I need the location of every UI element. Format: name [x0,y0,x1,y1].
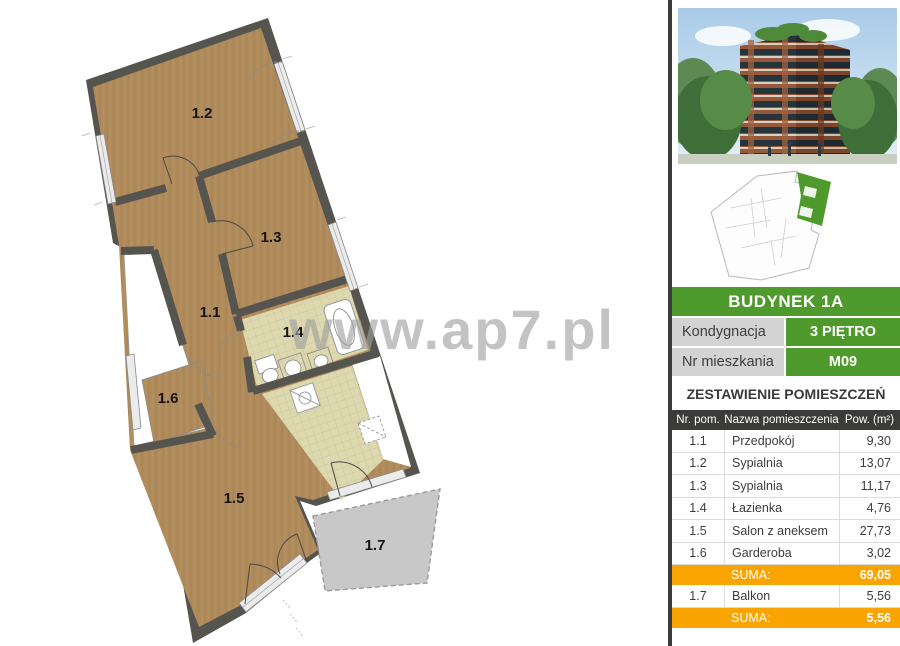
info-row-nr-mieszkania: Nr mieszkania M09 [672,348,900,376]
room-area: 4,76 [839,498,900,520]
room-area: 13,07 [839,453,900,475]
room-label: 1.7 [365,537,386,554]
room-label: 1.3 [261,229,282,246]
suma-value: 69,05 [839,568,900,582]
building-title: BUDYNEK 1A [672,287,900,316]
floor-plan-area: 1.1 1.2 1.3 1.4 1.5 1.6 1.7 www.ap7.pl [0,0,668,646]
info-value: 3 PIĘTRO [786,318,900,346]
room-label: 1.5 [224,490,245,507]
col-header-area: Pow. (m²) [839,414,900,426]
room-area: 27,73 [839,520,900,542]
floor-overview-miniplan [701,168,871,284]
col-header-nr: Nr. pom. [672,414,724,426]
room-area: 11,17 [839,475,900,497]
room-name: Balkon [724,585,839,607]
sidebar: BUDYNEK 1A Kondygnacja 3 PIĘTRO Nr miesz… [668,0,900,646]
ground [678,154,897,164]
suma-row-balcony: SUMA: 5,56 [672,608,900,628]
room-label: 1.2 [192,105,213,122]
table-row: 1.1 Przedpokój 9,30 [672,430,900,453]
table-row: 1.7 Balkon 5,56 [672,585,900,608]
rooms-table-title: ZESTAWIENIE POMIESZCZEŃ [672,378,900,410]
room-nr: 1.2 [672,456,724,470]
room-area: 3,02 [839,543,900,565]
floor-plan-svg: 1.1 1.2 1.3 1.4 1.5 1.6 1.7 www.ap7.pl [0,0,668,646]
room-name: Sypialnia [724,453,839,475]
room-name: Sypialnia [724,475,839,497]
room-nr: 1.5 [672,524,724,538]
info-label: Nr mieszkania [672,348,784,376]
table-row: 1.3 Sypialnia 11,17 [672,475,900,498]
room-name: Garderoba [724,543,839,565]
room-nr: 1.6 [672,546,724,560]
table-row: 1.6 Garderoba 3,02 [672,543,900,566]
unit-highlight [797,172,831,226]
room-name: Łazienka [724,498,839,520]
room-nr: 1.4 [672,501,724,515]
table-row: 1.2 Sypialnia 13,07 [672,453,900,476]
room-area: 5,56 [839,585,900,607]
room-nr: 1.3 [672,479,724,493]
rooms-table-body: 1.1 Przedpokój 9,30 1.2 Sypialnia 13,07 … [672,430,900,628]
room-label: 1.6 [158,390,179,407]
room-label: 1.1 [200,304,221,321]
suma-row-apartment: SUMA: 69,05 [672,565,900,585]
suma-label: SUMA: [724,568,839,582]
info-value: M09 [786,348,900,376]
table-row: 1.5 Salon z aneksem 27,73 [672,520,900,543]
room-nr: 1.7 [672,589,724,603]
room-nr: 1.1 [672,434,724,448]
page: 1.1 1.2 1.3 1.4 1.5 1.6 1.7 www.ap7.pl [0,0,900,646]
rooms-table-header: Nr. pom. Nazwa pomieszczenia Pow. (m²) [672,410,900,430]
watermark: www.ap7.pl [288,298,615,361]
suma-value: 5,56 [839,611,900,625]
room-name: Salon z aneksem [724,520,839,542]
building-photo [678,8,897,164]
info-label: Kondygnacja [672,318,784,346]
suma-label: SUMA: [724,611,839,625]
col-header-name: Nazwa pomieszczenia [724,414,839,426]
room-area: 9,30 [839,430,900,452]
info-row-kondygnacja: Kondygnacja 3 PIĘTRO [672,318,900,346]
room-name: Przedpokój [724,430,839,452]
table-row: 1.4 Łazienka 4,76 [672,498,900,521]
